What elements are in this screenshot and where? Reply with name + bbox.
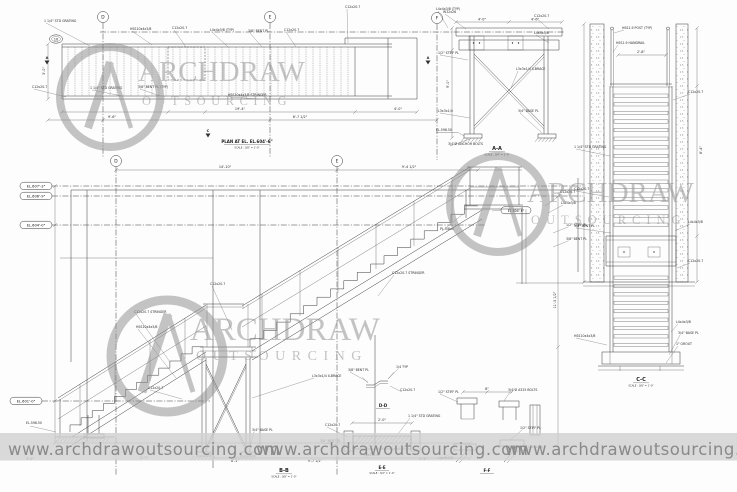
level-label-604: EL.604'-0" [20,221,52,229]
callout-label: HSS10x4x3/8 [574,334,595,338]
callout-label: 1/2" STIFF PL [520,426,541,430]
grid-bubble-e: E [265,12,276,23]
svg-text:EL.606'-9": EL.606'-9" [27,195,46,199]
svg-text:D-D: D-D [379,403,388,408]
callout-label: 3/4"Ø ANCHOR BOLTS [448,141,483,146]
callout-label: 1" GROUT [676,342,692,346]
dimension-text: 8'-4" [699,146,703,154]
dimension-text: 6'-7 1/2" [293,115,308,119]
watermark-logo-top-left: ARCHDRAW OUTSOURCING [60,47,305,147]
drawing-sheet: 10 D E F A A C PLAN AT EL. EL.604'-6" SC… [0,0,737,492]
watermark-brand-subtext: OUTSOURCING [196,349,368,364]
grid-bubble-d: D [98,12,109,23]
watermark-brand-subtext: OUTSOURCING [142,94,292,108]
callout-label: HSS10x4x3/8 [130,27,151,31]
callout-label: HSS1.9 HANDRAIL [616,41,645,45]
grid-bubble-10: 10 [50,35,63,43]
callout-label: W12x26 [443,10,456,14]
callout-label: 1/2" STIFF PL [438,390,459,394]
detail-ee-title: E-E SCALE : 3/4" = 1'-0" [369,465,394,475]
callout-label: C12x20.7 [284,28,299,32]
svg-text:C-C: C-C [636,377,646,383]
dimension-text: 14'-10" [219,165,232,169]
callout-label: C12x20.7 [210,282,225,286]
dimension-text: 4'-0" [394,107,402,111]
callout-label: C12x20.7 [148,386,163,390]
callout-label: 3/8" BENT PL [348,368,369,372]
callout-label: C12x20.7 [32,85,47,89]
callout-label: 1 1/4" STD GRATING [574,145,607,149]
detail-dd-title: D-D [376,403,390,408]
svg-text:EL.604'-0": EL.604'-0" [27,224,46,228]
section-marker-a-right: A [426,56,431,65]
dimension-text: 4'-0" [478,18,486,22]
callout-label: 1 1/4" STD GRATING [44,19,77,23]
svg-text:EL.598.50: EL.598.50 [26,421,42,425]
dimension-text: 9'-6" [108,115,116,119]
svg-text:SCALE : 3/8" = 1'-0": SCALE : 3/8" = 1'-0" [628,383,653,387]
callout-label: L4x4x3/8 [534,31,549,35]
callout-label: 1/4 TYP [396,365,408,369]
dimension-text: 2'-0" [378,418,386,422]
svg-text:PLAN AT EL. EL.604'-6": PLAN AT EL. EL.604'-6" [221,139,272,144]
plan-title: PLAN AT EL. EL.604'-6" SCALE : 3/8" = 1'… [221,139,272,150]
callout-label: L4x4x3/8 [676,320,691,324]
svg-text:B-B: B-B [279,468,289,474]
callout-label: C12x20.7 [345,5,360,9]
callout-label: L3x3x1/4 X-BRACE [516,67,545,71]
svg-text:EL.607'-3": EL.607'-3" [27,185,46,189]
grid-bubble-d-elev: D [111,156,122,167]
callout-label: 1 1/4" STD GRATING [408,414,441,418]
callout-label: C12x20.7 [688,90,703,94]
grid-bubble-10-label: 10 [54,37,59,41]
svg-text:SCALE : 3/8" = 1'-0": SCALE : 3/8" = 1'-0" [271,475,296,479]
callout-label: 3/8" BENT PL [248,29,269,33]
callout-label: C12x20.7 [172,26,187,30]
watermark-brand-text: ARCHDRAW [527,177,694,209]
svg-text:A: A [46,56,49,60]
callout-label: 3/4" BASE PL [518,109,539,113]
grid-bubble-e-label: E [269,15,272,21]
dimension-text: 2'-8" [637,50,645,54]
svg-text:C: C [207,129,210,133]
grid-bubble-e-elev: E [332,156,343,167]
callout-label: C12x20.7 STRINGER [392,271,425,275]
url-text-1: www.archdrawoutsourcing.com [8,440,280,459]
callout-label: L4x4x3/8 [688,220,703,224]
section-bb-title: B-B SCALE : 3/8" = 1'-0" [271,468,296,479]
callout-label: HSS1.9 POST (TYP) [622,26,652,30]
dimension-text: 8" [485,387,489,391]
callout-label: L4x4x3/8 (TYP) [210,28,234,32]
url-text-2: www.archdrawoutsourcing.com [256,440,528,459]
watermark-brand-text: ARCHDRAW [190,312,381,348]
callout-label: 3/4" BASE PL [678,331,699,335]
watermark-brand-subtext: OUTSOURCING [531,213,687,227]
callout-label: L3x3x1/4 X-BRACE [312,374,341,378]
level-label-606: EL.606'-9" [20,192,52,200]
level-el598-tower: EL.598.50 [436,128,464,136]
svg-text:EL.601'-0": EL.601'-0" [17,400,36,404]
concrete-wall-left [590,24,604,282]
detail-ff-title: F-F [480,468,494,473]
grid-bubble-f: F [432,13,443,24]
svg-text:SCALE : 3/4" = 1'-0": SCALE : 3/4" = 1'-0" [369,471,394,475]
section-cc-title: C-C SCALE : 3/8" = 1'-0" [628,377,653,387]
callout-label: 1/2" STIFF PL [438,51,459,55]
level-label-607: EL.607'-3" [20,182,52,190]
svg-text:F-F: F-F [483,468,490,473]
section-marker-c: C [206,129,211,138]
svg-text:E-E: E-E [378,465,385,470]
callout-label: L3x3x1/4 [438,109,453,113]
stair-drawing-svg: 10 D E F A A C PLAN AT EL. EL.604'-6" SC… [0,0,737,492]
level-el598-elev: EL.598.50 [26,421,56,432]
level-label-601: EL.601'-0" [10,397,42,405]
callout-label: 3/4" BASE PL [252,428,273,432]
svg-text:EL.598.50: EL.598.50 [436,128,452,132]
dimension-text: 11'-5 1/2" [553,291,557,308]
callout-label: 3/8" BENT PL [566,237,587,241]
callout-label: 3/4"Ø A325 BOLTS [508,387,537,392]
url-banner: www.archdrawoutsourcing.com www.archdraw… [0,433,737,461]
section-marker-a-left: A [45,56,50,65]
callout-label: HSS10x4x3/8 [136,325,157,329]
watermark-brand-text: ARCHDRAW [138,56,305,88]
svg-text:A-A: A-A [492,146,502,152]
svg-text:A: A [427,56,430,60]
svg-text:E: E [336,159,339,165]
url-text-3: www.archdrawoutsourcing.com [505,440,737,459]
callout-label: C12x20.7 [400,388,415,392]
callout-label: C12x20.7 [688,259,703,263]
concrete-wall-right [676,24,688,282]
dimension-text: 9'-0" [446,80,450,88]
dimension-text: 9'-4 1/2" [402,165,417,169]
section-aa-view: EL.598.50 A-A SCALE : 3/4" = 1'-0" [436,22,562,156]
svg-text:SCALE : 3/8" = 1'-0": SCALE : 3/8" = 1'-0" [234,146,259,150]
callout-label: C12x20.7 [325,423,340,427]
dimension-text: 4'-0" [531,18,539,22]
dimension-text: 3'-0" [42,67,46,75]
